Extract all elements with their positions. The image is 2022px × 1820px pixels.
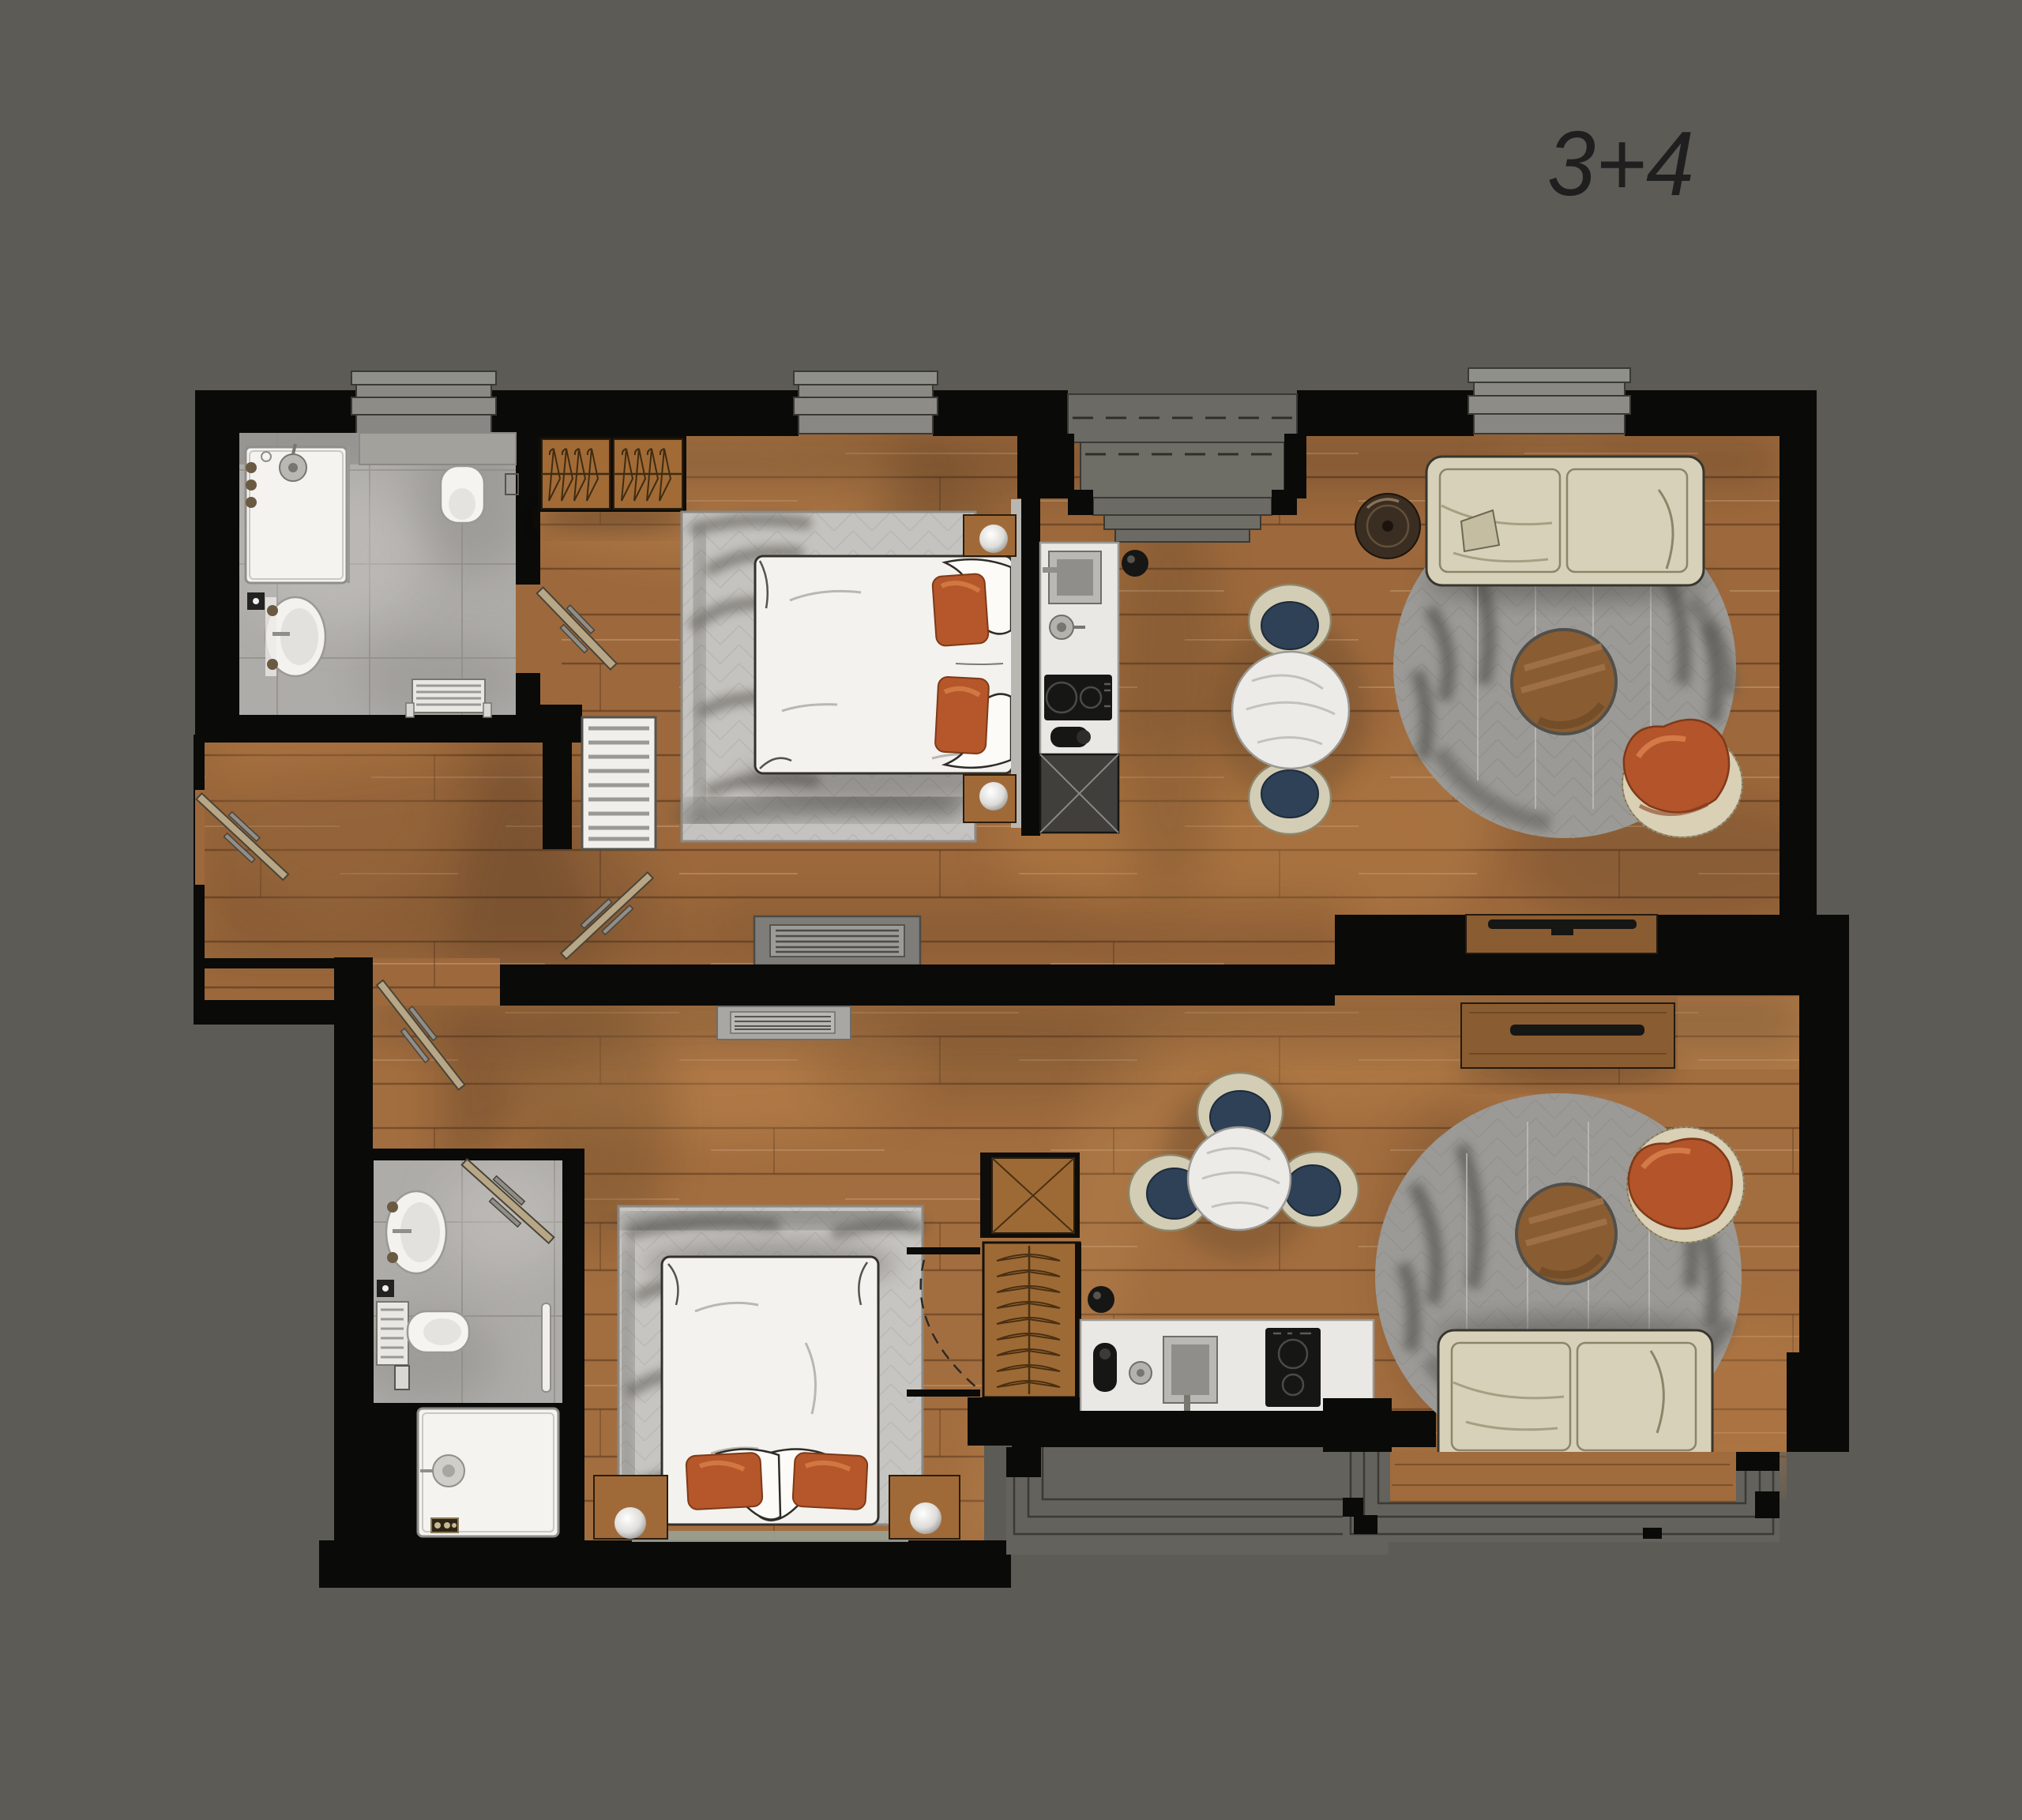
svg-text:3+4: 3+4 — [1547, 112, 1694, 215]
